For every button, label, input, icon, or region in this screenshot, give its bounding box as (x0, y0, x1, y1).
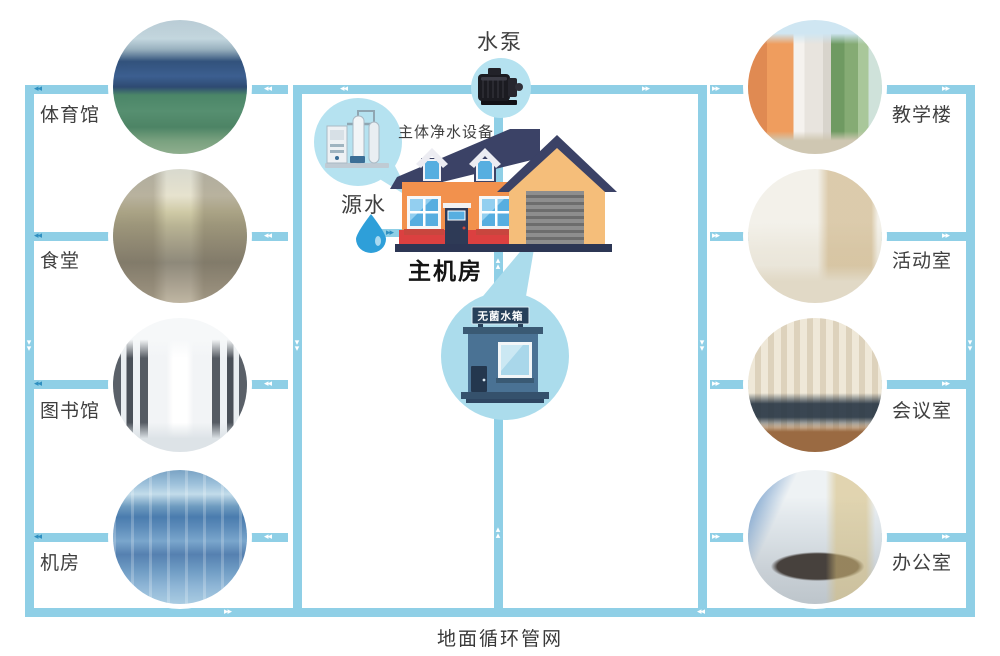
water-pump-icon (470, 57, 532, 119)
building-label-teaching-building: 教学楼 (892, 100, 952, 127)
source-water-label: 源水 (341, 189, 387, 219)
footer-label: 地面循环管网 (0, 624, 1000, 651)
photo-canteen (113, 169, 247, 303)
building-label-canteen: 食堂 (40, 246, 80, 273)
building-label-computer-room: 机房 (40, 548, 80, 575)
building-label-activity-room: 活动室 (892, 246, 952, 273)
building-label-meeting-room: 会议室 (892, 396, 952, 423)
sterile-tank-building-icon: 无菌水箱 (455, 300, 555, 404)
pipe-center-left-vertical (293, 85, 302, 617)
pump-label: 水泵 (455, 26, 545, 56)
photo-computer-room (113, 470, 247, 604)
main-room-label: 主机房 (408, 252, 483, 286)
photo-office (748, 470, 882, 604)
pipe-center-right-vertical (698, 85, 707, 617)
purifier-label: 主体净水设备 (398, 121, 494, 142)
main-room-house-icon (388, 126, 620, 256)
building-label-office: 办公室 (892, 548, 952, 575)
photo-teaching-building (748, 20, 882, 154)
photo-activity-room (748, 169, 882, 303)
water-purifier-icon (320, 104, 396, 180)
campus-water-circulation-diagram: 体育馆 食堂 图书馆 机房 教学楼 活动室 会议室 办公室 水泵 (0, 0, 1000, 656)
tank-sign-label: 无菌水箱 (477, 310, 524, 323)
water-drop-icon (353, 213, 389, 254)
photo-gymnasium (113, 20, 247, 154)
photo-library (113, 318, 247, 452)
building-label-gymnasium: 体育馆 (40, 100, 100, 127)
photo-meeting-room (748, 318, 882, 452)
building-label-library: 图书馆 (40, 396, 100, 423)
